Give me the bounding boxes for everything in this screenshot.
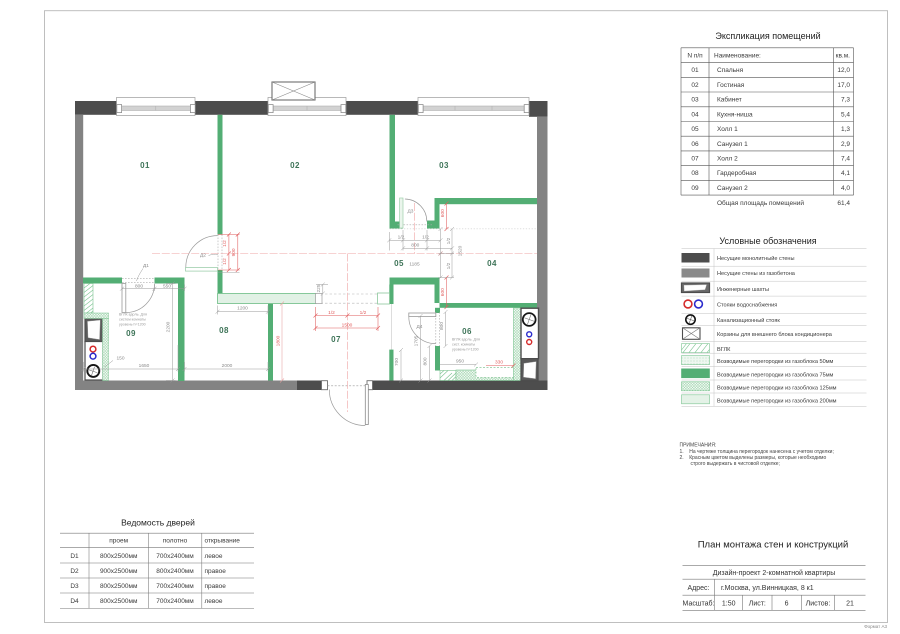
svg-text:03: 03: [691, 97, 699, 104]
svg-text:Возводимые перегородки из газо: Возводимые перегородки из газоблока 75мм: [717, 372, 834, 378]
svg-text:4,0: 4,0: [841, 185, 850, 192]
svg-text:06: 06: [691, 141, 699, 148]
svg-text:08: 08: [691, 170, 699, 177]
svg-text:систем комнаты: систем комнаты: [119, 318, 146, 322]
svg-text:07: 07: [331, 335, 341, 344]
svg-text:Холл 2: Холл 2: [717, 156, 738, 163]
svg-text:1/2: 1/2: [222, 240, 228, 247]
svg-text:800х2500мм: 800х2500мм: [100, 583, 138, 590]
svg-text:700х2400мм: 700х2400мм: [156, 598, 194, 605]
svg-text:уровень h=1200: уровень h=1200: [452, 348, 479, 352]
svg-text:1500: 1500: [342, 322, 353, 328]
svg-text:800: 800: [423, 357, 429, 365]
svg-text:550: 550: [163, 283, 171, 289]
svg-text:4,1: 4,1: [841, 170, 850, 177]
svg-text:1/2: 1/2: [422, 234, 429, 240]
svg-text:Экспликация помещений: Экспликация помещений: [715, 31, 820, 41]
svg-text:Дизайн-проект 2-комнатной квар: Дизайн-проект 2-комнатной квартиры: [713, 569, 836, 577]
svg-text:левое: левое: [205, 553, 223, 560]
svg-text:01: 01: [140, 161, 150, 170]
svg-text:800х2500мм: 800х2500мм: [100, 598, 138, 605]
svg-text:1800: 1800: [276, 335, 282, 346]
svg-text:05: 05: [394, 259, 404, 268]
svg-text:Стояки водоснабжения: Стояки водоснабжения: [717, 302, 777, 308]
svg-text:1200: 1200: [237, 306, 248, 312]
svg-text:07: 07: [691, 156, 699, 163]
svg-text:150: 150: [116, 356, 124, 362]
svg-text:Санузел 1: Санузел 1: [717, 141, 748, 148]
svg-text:1520: 1520: [458, 245, 464, 256]
svg-text:Лист:: Лист:: [749, 601, 766, 608]
svg-text:900х2500мм: 900х2500мм: [100, 568, 138, 575]
svg-text:строго выдержать в чистовой от: строго выдержать в чистовой отделке;: [691, 460, 780, 467]
svg-text:7,3: 7,3: [841, 97, 850, 104]
svg-text:ВГЛК: ВГЛК: [717, 347, 731, 353]
svg-text:Возводимые перегородки из газо: Возводимые перегородки из газоблока 200м…: [717, 398, 837, 404]
svg-text:Корзины для внешнего блока кон: Корзины для внешнего блока кондиционера: [717, 332, 833, 338]
svg-text:06: 06: [462, 327, 472, 336]
svg-text:ПРИМЕЧАНИЯ:: ПРИМЕЧАНИЯ:: [680, 443, 717, 449]
svg-text:1/2: 1/2: [328, 310, 335, 316]
svg-text:800: 800: [411, 243, 419, 249]
svg-text:N п/п: N п/п: [687, 53, 703, 60]
svg-text:01: 01: [691, 67, 699, 74]
svg-text:кв.м.: кв.м.: [836, 53, 851, 60]
svg-text:Санузел 2: Санузел 2: [717, 185, 748, 192]
svg-text:2000: 2000: [222, 363, 233, 369]
svg-text:Кухня-ниша: Кухня-ниша: [717, 111, 753, 118]
svg-text:D2: D2: [70, 568, 79, 575]
svg-text:7,4: 7,4: [841, 156, 850, 163]
svg-text:700: 700: [394, 358, 400, 366]
svg-text:Гардеробная: Гардеробная: [717, 169, 757, 177]
svg-text:открывание: открывание: [205, 538, 241, 545]
svg-text:Д2: Д2: [200, 252, 206, 258]
svg-text:1650: 1650: [139, 363, 150, 369]
svg-text:Возводимые перегородки из газо: Возводимые перегородки из газоблока 50мм: [717, 359, 834, 365]
svg-text:левое: левое: [205, 598, 223, 605]
svg-text:17,0: 17,0: [837, 82, 850, 89]
svg-text:г.Москва, ул.Винницкая, 8 к1: г.Москва, ул.Винницкая, 8 к1: [721, 585, 814, 592]
svg-text:План монтажа стен и конструкци: План монтажа стен и конструкций: [698, 540, 849, 551]
svg-text:330: 330: [495, 359, 503, 365]
svg-text:Наименование:: Наименование:: [714, 53, 761, 60]
svg-text:900: 900: [231, 248, 237, 256]
svg-text:08: 08: [219, 326, 229, 335]
svg-text:сист. комнаты: сист. комнаты: [452, 343, 475, 347]
svg-text:61,4: 61,4: [837, 200, 850, 207]
svg-text:800х2500мм: 800х2500мм: [100, 553, 138, 560]
svg-text:правое: правое: [205, 583, 227, 590]
svg-text:1/2: 1/2: [360, 310, 367, 316]
svg-text:Формат А3: Формат А3: [864, 624, 887, 629]
svg-text:ВГЛК вдоль. Для: ВГЛК вдоль. Для: [119, 313, 147, 317]
svg-text:ВГЛК вдоль. Для: ВГЛК вдоль. Для: [452, 338, 480, 342]
svg-text:1/2: 1/2: [446, 237, 452, 244]
svg-text:02: 02: [290, 161, 300, 170]
svg-text:проем: проем: [109, 538, 128, 545]
svg-text:Масштаб:: Масштаб:: [683, 600, 715, 608]
svg-text:D1: D1: [70, 553, 79, 560]
svg-text:уровень h=1200: уровень h=1200: [119, 323, 146, 327]
svg-text:Холл 1: Холл 1: [717, 126, 738, 133]
svg-text:700х2400мм: 700х2400мм: [156, 583, 194, 590]
svg-text:225: 225: [316, 284, 322, 292]
svg-text:Д3: Д3: [408, 208, 414, 214]
svg-text:Несущие стены из газобетона: Несущие стены из газобетона: [717, 271, 796, 277]
svg-text:04: 04: [691, 111, 699, 118]
svg-text:04: 04: [487, 259, 497, 268]
svg-text:правое: правое: [205, 568, 227, 575]
svg-text:Условные обозначения: Условные обозначения: [719, 236, 816, 246]
svg-text:03: 03: [439, 161, 449, 170]
svg-text:1705: 1705: [414, 335, 420, 346]
svg-text:02: 02: [691, 82, 699, 89]
svg-text:Инженерные шахты: Инженерные шахты: [717, 287, 769, 293]
svg-text:Адрес:: Адрес:: [688, 585, 710, 592]
svg-text:Д1: Д1: [143, 263, 149, 269]
svg-text:5,4: 5,4: [841, 111, 850, 118]
svg-text:09: 09: [691, 185, 699, 192]
svg-text:D4: D4: [70, 598, 79, 605]
svg-text:05: 05: [691, 126, 699, 133]
svg-text:12,0: 12,0: [837, 67, 850, 74]
svg-text:2,9: 2,9: [841, 141, 850, 148]
svg-text:Гостиная: Гостиная: [717, 82, 745, 89]
svg-text:800: 800: [135, 283, 143, 289]
svg-text:1/2: 1/2: [446, 262, 452, 269]
svg-text:1:50: 1:50: [722, 601, 736, 608]
svg-text:D3: D3: [70, 583, 79, 590]
svg-text:09: 09: [126, 329, 136, 338]
svg-text:Листов:: Листов:: [806, 601, 831, 608]
svg-text:Общая площадь помещений: Общая площадь помещений: [717, 199, 804, 207]
svg-text:800: 800: [439, 322, 445, 330]
svg-text:800х2400мм: 800х2400мм: [156, 568, 194, 575]
svg-text:1,3: 1,3: [841, 126, 850, 133]
svg-text:Д4: Д4: [417, 324, 423, 330]
svg-text:Несущие монолитныйе стены: Несущие монолитныйе стены: [717, 255, 795, 262]
svg-text:Кабинет: Кабинет: [717, 96, 742, 104]
svg-text:2200: 2200: [166, 321, 172, 332]
svg-text:21: 21: [846, 601, 854, 608]
svg-text:1185: 1185: [409, 261, 420, 267]
svg-text:полотно: полотно: [163, 538, 188, 545]
svg-text:600: 600: [440, 209, 446, 217]
svg-text:Ведомость дверей: Ведомость дверей: [121, 518, 195, 528]
svg-text:Возводимые перегородки из газо: Возводимые перегородки из газоблока 125м…: [717, 385, 837, 391]
svg-text:Спальня: Спальня: [717, 67, 744, 74]
svg-text:600: 600: [440, 288, 446, 296]
svg-text:950: 950: [456, 359, 464, 365]
svg-text:1/2: 1/2: [222, 258, 228, 265]
svg-text:Канализационный стояк: Канализационный стояк: [717, 317, 780, 324]
svg-text:1/2: 1/2: [398, 234, 405, 240]
svg-text:6: 6: [785, 601, 789, 608]
svg-text:700х2400мм: 700х2400мм: [156, 553, 194, 560]
